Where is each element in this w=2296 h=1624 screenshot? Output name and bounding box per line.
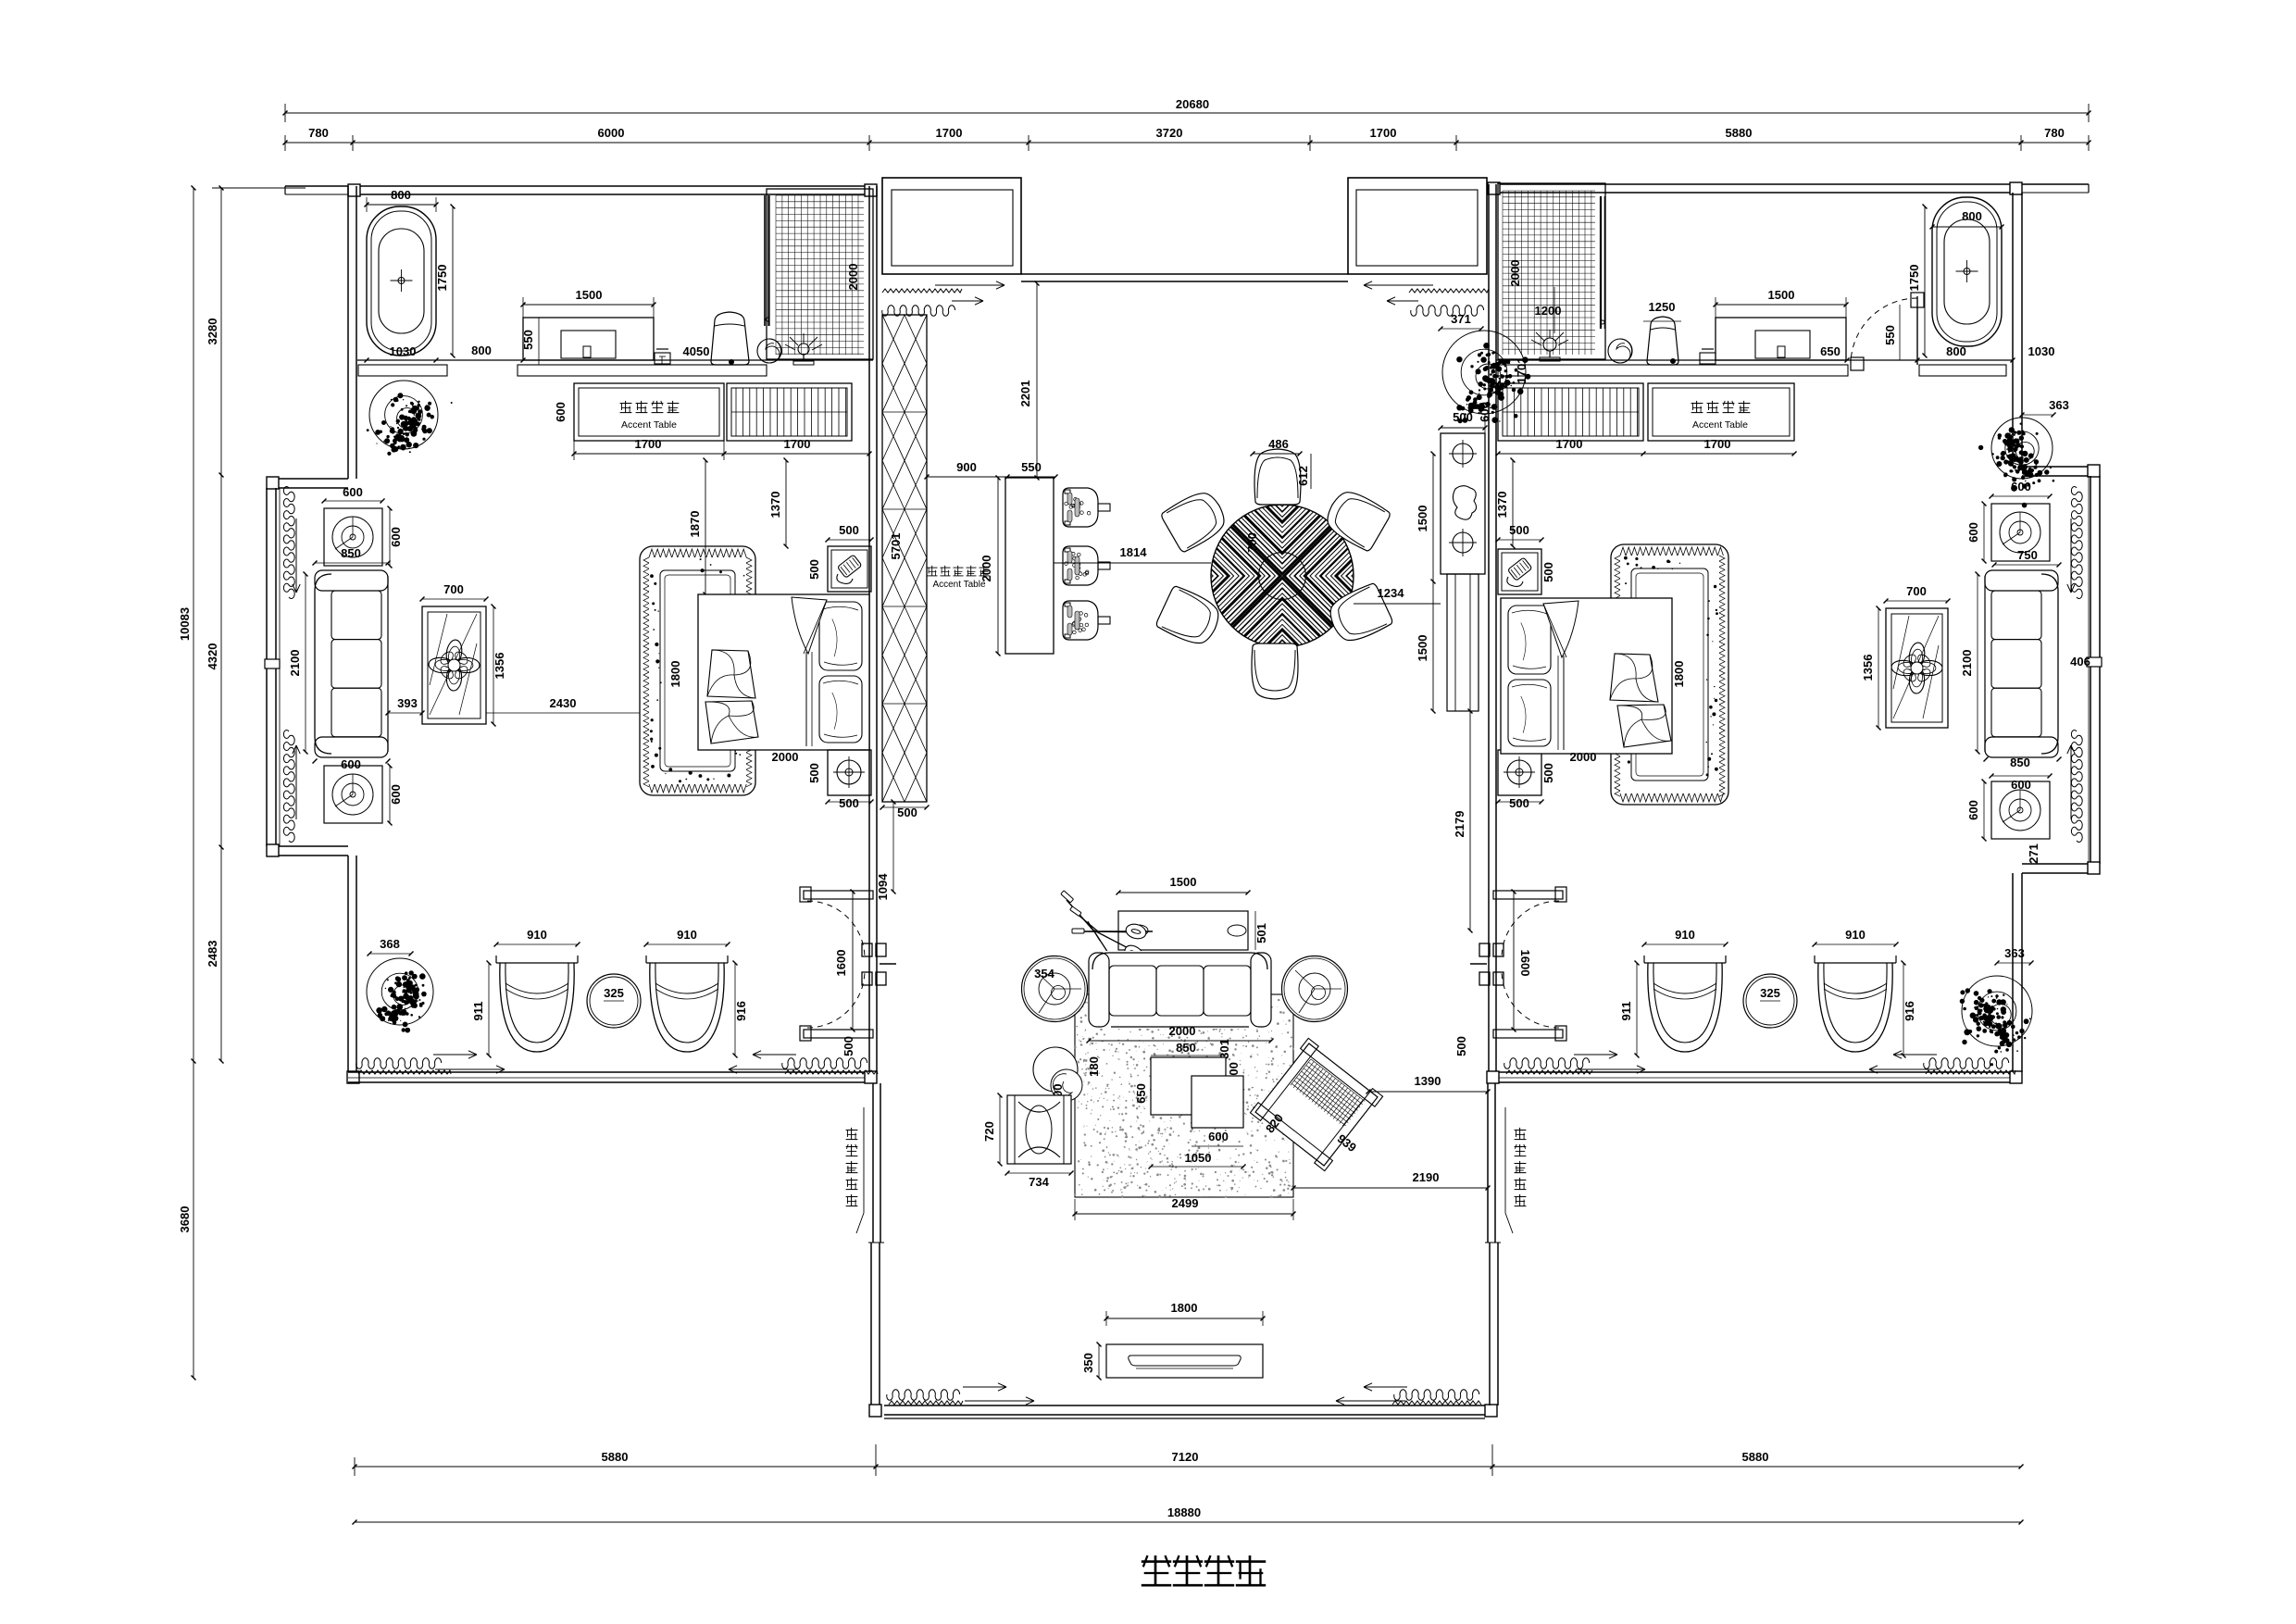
- svg-text:910: 910: [677, 928, 697, 942]
- svg-text:2483: 2483: [206, 941, 219, 968]
- svg-text:18880: 18880: [1167, 1505, 1201, 1519]
- svg-text:1600: 1600: [1518, 950, 1532, 977]
- svg-text:Accent Table: Accent Table: [932, 580, 986, 590]
- svg-text:2190: 2190: [1413, 1170, 1440, 1184]
- svg-text:1030: 1030: [390, 344, 417, 358]
- svg-text:600: 600: [2011, 778, 2031, 792]
- svg-text:5880: 5880: [1726, 126, 1753, 140]
- svg-text:500: 500: [807, 763, 821, 783]
- svg-text:600: 600: [554, 402, 568, 422]
- svg-text:600: 600: [389, 527, 403, 547]
- svg-text:1500: 1500: [1416, 635, 1429, 662]
- svg-text:850: 850: [2010, 756, 2030, 769]
- svg-text:325: 325: [1760, 986, 1780, 1000]
- svg-text:800: 800: [471, 344, 492, 357]
- svg-text:600: 600: [1478, 402, 1491, 422]
- svg-text:1390: 1390: [1415, 1074, 1441, 1088]
- svg-text:500: 500: [839, 796, 859, 810]
- svg-text:363: 363: [2004, 946, 2025, 960]
- svg-text:612: 612: [1296, 466, 1310, 486]
- svg-text:2100: 2100: [1960, 650, 1974, 677]
- svg-text:910: 910: [527, 928, 547, 942]
- svg-text:780: 780: [308, 126, 329, 140]
- svg-text:600: 600: [1966, 800, 1980, 820]
- svg-text:350: 350: [1081, 1353, 1095, 1373]
- svg-text:10083: 10083: [178, 607, 192, 641]
- svg-text:600: 600: [1208, 1130, 1229, 1143]
- svg-text:2000: 2000: [772, 750, 799, 764]
- svg-text:486: 486: [1268, 437, 1289, 451]
- svg-text:600: 600: [341, 757, 361, 771]
- svg-text:1356: 1356: [493, 653, 506, 680]
- svg-text:1700: 1700: [635, 437, 662, 451]
- svg-text:271: 271: [2027, 843, 2040, 864]
- svg-text:1094: 1094: [876, 873, 890, 901]
- svg-text:500: 500: [1509, 523, 1529, 537]
- svg-text:600: 600: [389, 784, 403, 805]
- svg-text:Accent Table: Accent Table: [1692, 419, 1748, 431]
- svg-text:910: 910: [1845, 928, 1865, 942]
- svg-text:363: 363: [2049, 398, 2069, 412]
- svg-text:2100: 2100: [288, 650, 302, 677]
- svg-text:1234: 1234: [1378, 586, 1405, 600]
- svg-text:1356: 1356: [1861, 655, 1875, 681]
- svg-text:1800: 1800: [1672, 661, 1686, 688]
- svg-text:3680: 3680: [178, 1206, 192, 1233]
- svg-text:500: 500: [807, 559, 821, 580]
- svg-text:4050: 4050: [683, 344, 710, 358]
- svg-text:1250: 1250: [1649, 300, 1676, 314]
- svg-text:1030: 1030: [2028, 344, 2055, 358]
- svg-text:6000: 6000: [598, 126, 625, 140]
- svg-text:2179: 2179: [1453, 811, 1466, 838]
- svg-text:180: 180: [1087, 1056, 1101, 1077]
- svg-text:1050: 1050: [1185, 1151, 1212, 1165]
- svg-text:1700: 1700: [784, 437, 811, 451]
- svg-text:1600: 1600: [834, 950, 848, 977]
- svg-text:393: 393: [397, 696, 418, 710]
- svg-text:301: 301: [1217, 1039, 1231, 1059]
- svg-text:1700: 1700: [936, 126, 963, 140]
- svg-text:500: 500: [1541, 763, 1555, 783]
- svg-text:501: 501: [1254, 923, 1268, 943]
- svg-text:550: 550: [1021, 460, 1042, 474]
- svg-text:600: 600: [2011, 480, 2031, 493]
- svg-text:371: 371: [1451, 312, 1471, 326]
- svg-text:780: 780: [2044, 126, 2065, 140]
- svg-text:3720: 3720: [1156, 126, 1183, 140]
- svg-text:734: 734: [1029, 1175, 1049, 1189]
- svg-text:406: 406: [2070, 655, 2090, 668]
- svg-text:2000: 2000: [980, 556, 993, 582]
- svg-text:1750: 1750: [435, 265, 449, 292]
- svg-text:500: 500: [839, 523, 859, 537]
- svg-text:700: 700: [1906, 584, 1927, 598]
- svg-text:700: 700: [1245, 532, 1259, 553]
- svg-text:916: 916: [1903, 1001, 1916, 1021]
- svg-text:750: 750: [2017, 548, 2038, 562]
- svg-text:500: 500: [1454, 1036, 1468, 1056]
- svg-text:1800: 1800: [1171, 1301, 1198, 1315]
- svg-text:700: 700: [443, 582, 464, 596]
- svg-text:500: 500: [1509, 796, 1529, 810]
- svg-text:910: 910: [1675, 928, 1695, 942]
- svg-text:2000: 2000: [1570, 750, 1597, 764]
- svg-text:1370: 1370: [1495, 492, 1509, 518]
- svg-text:1500: 1500: [1170, 875, 1197, 889]
- svg-text:800: 800: [1962, 209, 1982, 223]
- svg-text:Accent Table: Accent Table: [621, 419, 677, 431]
- svg-text:900: 900: [956, 460, 977, 474]
- svg-text:3280: 3280: [206, 319, 219, 345]
- svg-text:550: 550: [521, 330, 535, 350]
- svg-text:1370: 1370: [768, 492, 782, 518]
- svg-text:5880: 5880: [602, 1450, 629, 1464]
- svg-text:1700: 1700: [1370, 126, 1397, 140]
- svg-text:1700: 1700: [1704, 437, 1731, 451]
- svg-text:1500: 1500: [576, 288, 603, 302]
- svg-text:850: 850: [1176, 1041, 1196, 1055]
- svg-text:1814: 1814: [1120, 545, 1148, 559]
- svg-text:720: 720: [982, 1121, 996, 1142]
- svg-text:1700: 1700: [1556, 437, 1583, 451]
- svg-text:550: 550: [1883, 325, 1897, 345]
- svg-text:911: 911: [471, 1002, 485, 1021]
- svg-text:1500: 1500: [1416, 506, 1429, 532]
- svg-text:2000: 2000: [1508, 260, 1522, 287]
- svg-text:1750: 1750: [1907, 265, 1921, 292]
- svg-text:800: 800: [391, 188, 411, 202]
- svg-text:1200: 1200: [1535, 304, 1562, 318]
- svg-text:1870: 1870: [688, 511, 702, 538]
- svg-text:1701: 1701: [1515, 357, 1529, 384]
- svg-text:20680: 20680: [1176, 97, 1209, 111]
- svg-text:1500: 1500: [1768, 288, 1795, 302]
- svg-text:500: 500: [842, 1036, 855, 1056]
- svg-text:911: 911: [1619, 1002, 1633, 1021]
- svg-text:354: 354: [1034, 967, 1054, 981]
- svg-text:325: 325: [604, 986, 624, 1000]
- svg-text:500: 500: [1541, 562, 1555, 582]
- svg-text:650: 650: [1134, 1083, 1148, 1104]
- svg-text:7120: 7120: [1172, 1450, 1199, 1464]
- svg-text:368: 368: [380, 937, 400, 951]
- svg-text:4320: 4320: [206, 643, 219, 670]
- svg-text:1800: 1800: [668, 661, 682, 688]
- svg-text:2499: 2499: [1172, 1196, 1199, 1210]
- svg-text:2430: 2430: [550, 696, 577, 710]
- svg-text:650: 650: [1820, 344, 1841, 358]
- svg-text:2000: 2000: [846, 264, 860, 291]
- svg-text:2000: 2000: [1169, 1024, 1196, 1038]
- svg-text:600: 600: [1966, 522, 1980, 543]
- svg-text:850: 850: [341, 546, 361, 560]
- svg-text:2201: 2201: [1018, 381, 1032, 407]
- svg-text:916: 916: [734, 1001, 748, 1021]
- svg-text:5701: 5701: [889, 533, 903, 560]
- svg-text:600: 600: [343, 485, 363, 499]
- svg-text:5880: 5880: [1742, 1450, 1769, 1464]
